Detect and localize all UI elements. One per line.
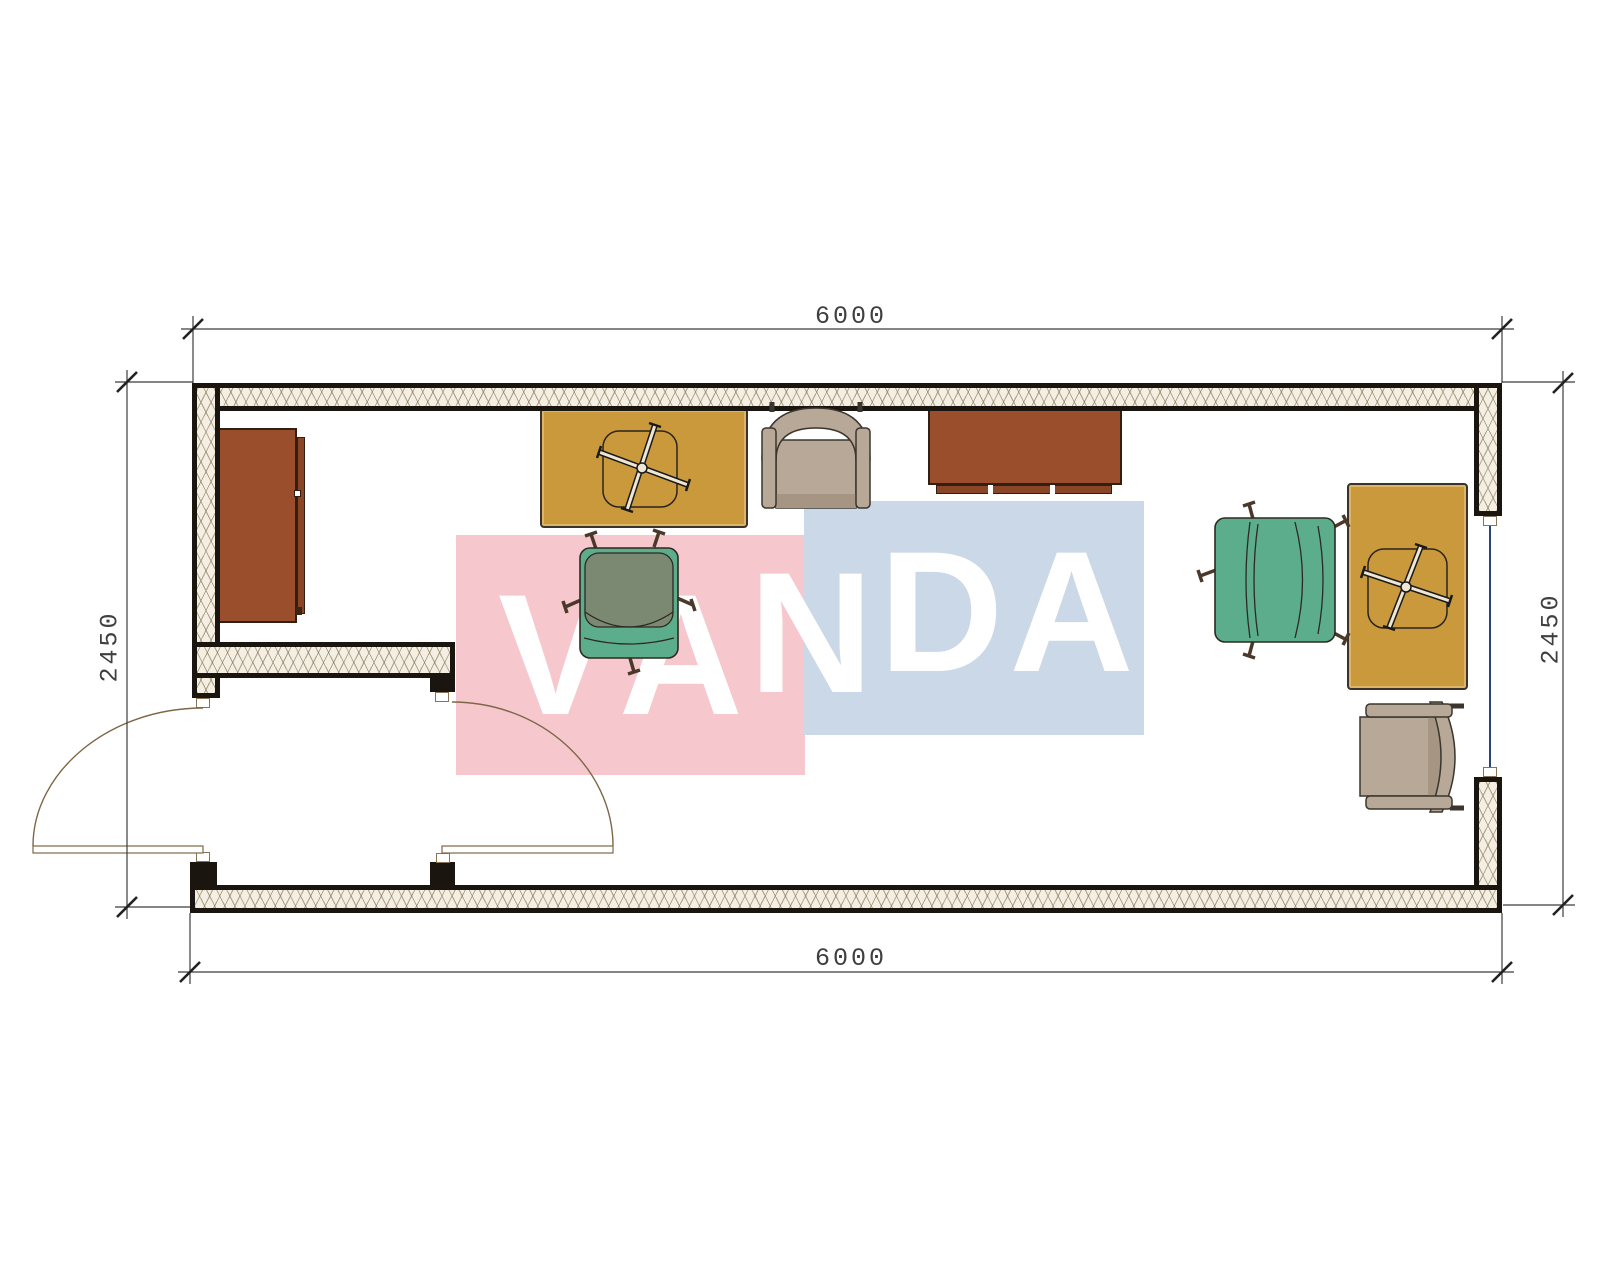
door-east-swing xyxy=(442,702,613,853)
dimension-right: 2450 xyxy=(1537,569,1566,689)
office-chair-1 xyxy=(563,530,695,674)
dimension-top: 6000 xyxy=(796,302,906,331)
armchair-1 xyxy=(762,402,870,508)
plan-linework xyxy=(0,0,1600,1280)
dimension-bottom: 6000 xyxy=(796,944,906,973)
floor-plan-canvas: VANDA xyxy=(0,0,1600,1280)
office-chair-2 xyxy=(1198,502,1349,658)
door-west-swing xyxy=(33,708,203,853)
armchair-2 xyxy=(1360,702,1464,812)
task-chair-under-desk-1 xyxy=(597,423,690,512)
task-chair-under-desk-2 xyxy=(1361,544,1452,630)
dimension-left: 2450 xyxy=(96,587,125,707)
